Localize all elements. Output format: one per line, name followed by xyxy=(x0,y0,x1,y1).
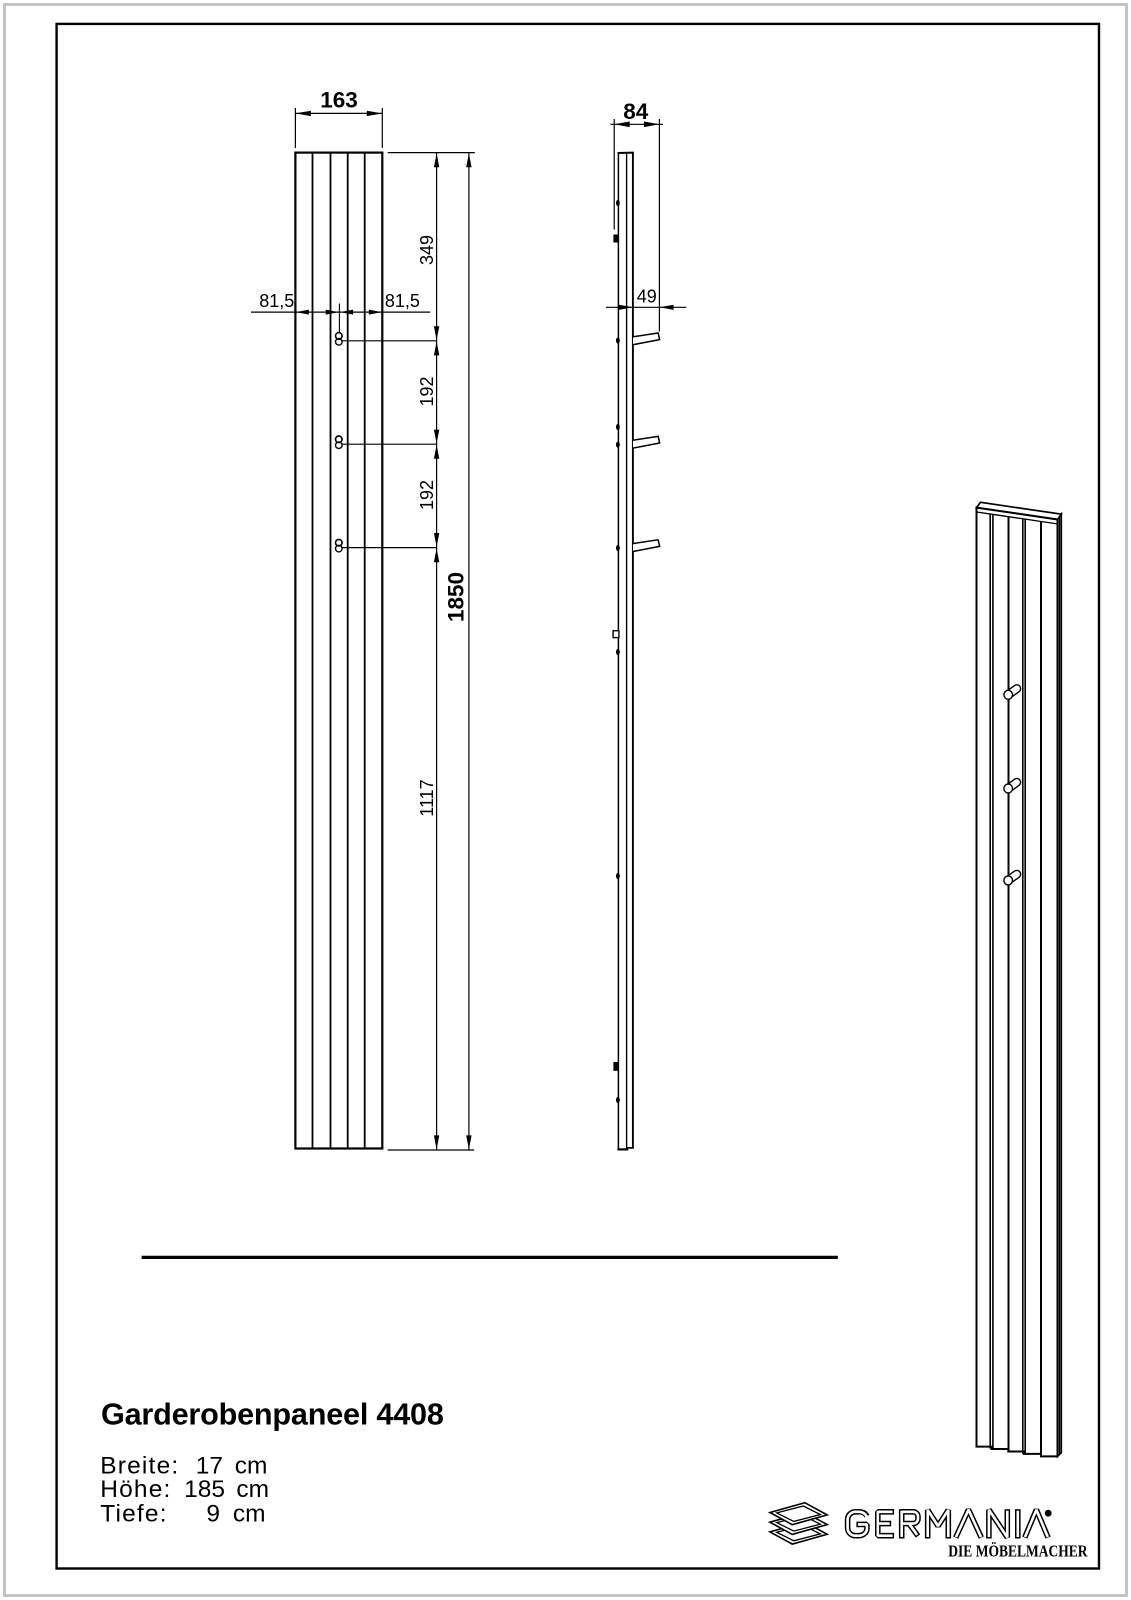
svg-text:cm: cm xyxy=(236,1476,269,1503)
svg-text:1117: 1117 xyxy=(417,779,437,816)
svg-text:Tiefe:: Tiefe: xyxy=(100,1501,168,1528)
svg-text:185: 185 xyxy=(184,1476,225,1503)
svg-text:81,5: 81,5 xyxy=(259,291,294,311)
svg-text:163: 163 xyxy=(320,88,358,113)
svg-text:9: 9 xyxy=(206,1501,220,1528)
svg-text:49: 49 xyxy=(637,287,657,307)
svg-text:84: 84 xyxy=(623,99,649,124)
svg-text:cm: cm xyxy=(233,1501,266,1528)
svg-text:1850: 1850 xyxy=(444,572,469,622)
svg-text:81,5: 81,5 xyxy=(385,291,420,311)
svg-text:Höhe:: Höhe: xyxy=(100,1476,171,1503)
svg-text:192: 192 xyxy=(417,376,437,406)
svg-text:349: 349 xyxy=(417,235,437,265)
svg-text:DIE MÖBELMACHER: DIE MÖBELMACHER xyxy=(948,1542,1088,1561)
svg-text:Garderobenpaneel 4408: Garderobenpaneel 4408 xyxy=(101,1397,444,1431)
svg-text:192: 192 xyxy=(417,480,437,510)
